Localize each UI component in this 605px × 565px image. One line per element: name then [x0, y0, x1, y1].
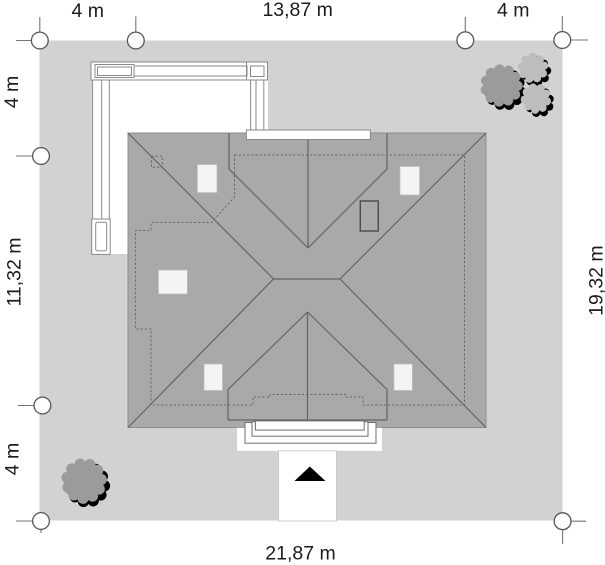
svg-text:13,87 m: 13,87 m	[262, 0, 332, 21]
svg-text:11,32 m: 11,32 m	[4, 237, 26, 306]
svg-text:4 m: 4 m	[497, 0, 530, 22]
svg-text:21,87 m: 21,87 m	[265, 543, 335, 565]
svg-text:19,32 m: 19,32 m	[586, 245, 605, 315]
svg-text:4 m: 4 m	[72, 0, 105, 22]
svg-text:4 m: 4 m	[2, 443, 24, 476]
svg-text:4 m: 4 m	[1, 76, 23, 109]
